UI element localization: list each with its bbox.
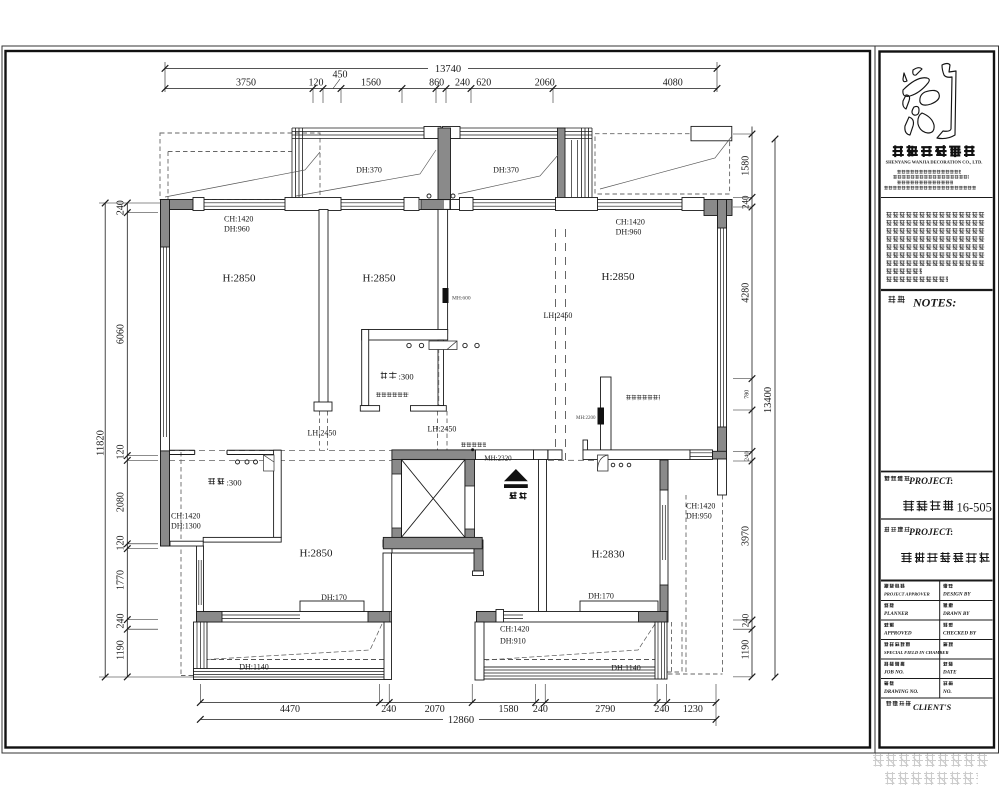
svg-text:CH:1420: CH:1420 — [224, 215, 253, 224]
svg-text:240: 240 — [741, 613, 751, 627]
svg-text:DRAWING NO.: DRAWING NO. — [883, 689, 918, 695]
svg-text:780: 780 — [745, 390, 751, 399]
svg-text:H:2850: H:2850 — [300, 548, 334, 560]
svg-text:DH:170: DH:170 — [321, 593, 347, 602]
svg-text:DH:910: DH:910 — [500, 637, 526, 646]
svg-text:1580: 1580 — [741, 156, 752, 176]
svg-text:DH:370: DH:370 — [356, 166, 382, 175]
svg-text:1560: 1560 — [361, 78, 381, 89]
svg-text:DATE: DATE — [942, 670, 957, 676]
svg-text:DESIGN BY: DESIGN BY — [942, 592, 971, 598]
svg-text:3970: 3970 — [741, 526, 752, 546]
svg-text:240: 240 — [455, 78, 470, 89]
svg-text:120: 120 — [309, 78, 324, 89]
svg-text:DH:1140: DH:1140 — [239, 663, 268, 672]
svg-text::: : — [950, 528, 953, 538]
svg-text:1580: 1580 — [499, 704, 519, 715]
svg-text:4470: 4470 — [280, 704, 300, 715]
svg-text:DH:950: DH:950 — [686, 512, 712, 521]
svg-text:120: 120 — [116, 445, 127, 460]
svg-text:H:2850: H:2850 — [223, 273, 257, 285]
svg-text:DH:370: DH:370 — [493, 166, 519, 175]
svg-text:4280: 4280 — [741, 283, 752, 303]
svg-text:DH:170: DH:170 — [588, 592, 614, 601]
svg-text:620: 620 — [476, 78, 491, 89]
svg-text:APPROVED: APPROVED — [883, 631, 912, 637]
svg-text:PROJECT: PROJECT — [909, 528, 952, 538]
svg-text:240: 240 — [381, 704, 396, 715]
svg-text::300: :300 — [227, 478, 242, 488]
svg-text:240: 240 — [116, 614, 127, 629]
svg-text:PLANNER: PLANNER — [884, 611, 909, 617]
svg-text:11820: 11820 — [96, 430, 107, 456]
svg-text:DH:1300: DH:1300 — [171, 522, 201, 531]
svg-text:LH:2450: LH:2450 — [308, 429, 337, 438]
svg-text:13740: 13740 — [435, 64, 461, 75]
svg-text:450: 450 — [333, 70, 348, 81]
svg-text:6060: 6060 — [116, 324, 127, 344]
svg-text:CH:1420: CH:1420 — [616, 217, 645, 226]
svg-text:NO.: NO. — [942, 689, 952, 695]
svg-text:MH:2320: MH:2320 — [484, 455, 512, 463]
svg-text:1190: 1190 — [741, 640, 752, 660]
svg-text:240: 240 — [116, 200, 127, 215]
svg-text:CH:1420: CH:1420 — [500, 625, 529, 634]
svg-text:H:2850: H:2850 — [363, 273, 397, 285]
svg-text::: : — [950, 477, 953, 487]
svg-text:SHENYANG WANJIA DECORATION CO.: SHENYANG WANJIA DECORATION CO., LTD. — [886, 160, 983, 165]
svg-text:120: 120 — [116, 536, 127, 551]
svg-text:NOTES:: NOTES: — [912, 296, 956, 310]
svg-text:CLIENT'S: CLIENT'S — [913, 702, 952, 712]
svg-text:240: 240 — [741, 195, 751, 209]
svg-text:1190: 1190 — [116, 640, 127, 660]
svg-text:H:2830: H:2830 — [592, 549, 626, 561]
svg-text:CH:1420: CH:1420 — [171, 512, 200, 521]
svg-text:1230: 1230 — [683, 704, 703, 715]
svg-text:CH:1420: CH:1420 — [686, 502, 715, 511]
svg-text:2790: 2790 — [595, 704, 615, 715]
svg-text:1770: 1770 — [116, 570, 127, 590]
svg-text:DH:960: DH:960 — [224, 225, 250, 234]
svg-text:860: 860 — [429, 78, 444, 89]
svg-text::300: :300 — [399, 372, 414, 382]
svg-text:4080: 4080 — [663, 78, 683, 89]
svg-text:MH:2200: MH:2200 — [576, 416, 596, 421]
svg-text:LH:2450: LH:2450 — [428, 425, 457, 434]
svg-text:240: 240 — [744, 451, 751, 461]
svg-text:PROJECT APPROVER: PROJECT APPROVER — [884, 592, 930, 597]
svg-text:MH:600: MH:600 — [452, 296, 471, 302]
svg-text:2080: 2080 — [116, 492, 127, 512]
svg-text:DH:1140: DH:1140 — [611, 664, 640, 673]
svg-text:LH:2450: LH:2450 — [544, 311, 573, 320]
svg-text:12860: 12860 — [448, 715, 474, 726]
svg-text:2060: 2060 — [535, 78, 555, 89]
svg-text:H:2850: H:2850 — [602, 271, 636, 283]
svg-text:13400: 13400 — [763, 387, 774, 413]
svg-text:16-505: 16-505 — [957, 501, 992, 515]
svg-text:SPECIAL FIELD IN CHAMBER: SPECIAL FIELD IN CHAMBER — [884, 650, 949, 655]
svg-text:DH:960: DH:960 — [616, 228, 642, 237]
svg-text:3750: 3750 — [236, 78, 256, 89]
svg-text:2070: 2070 — [425, 704, 445, 715]
svg-text:JOB NO.: JOB NO. — [883, 670, 904, 676]
svg-text:CHECKED BY: CHECKED BY — [943, 631, 977, 637]
svg-text:DRAWN BY: DRAWN BY — [942, 611, 970, 617]
svg-text:240: 240 — [654, 704, 669, 715]
svg-text:240: 240 — [533, 704, 548, 715]
svg-text:PROJECT: PROJECT — [909, 477, 952, 487]
